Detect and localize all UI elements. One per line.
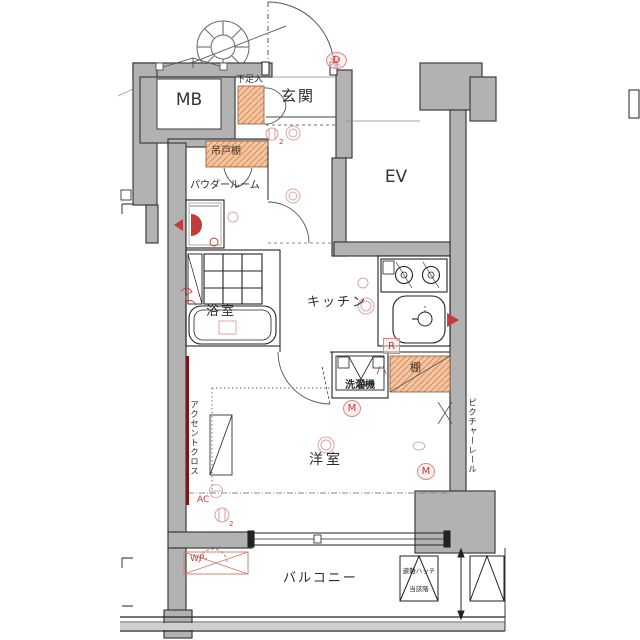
washer-box <box>332 352 388 398</box>
mark-m-room: M <box>417 463 435 480</box>
fixture-label-picture-rail: ピクチャーレール <box>467 398 476 498</box>
fixture-label-evac-floor: 当該階 <box>400 586 438 593</box>
fixture-label-washer: 洗濯機 <box>333 381 387 391</box>
fixture-label-shoe-box: 下足入 <box>236 76 263 85</box>
balcony-window <box>248 531 450 547</box>
floor-plan-drawing <box>0 0 640 640</box>
fixture-label-cupboard: 吊戸棚 <box>211 147 241 157</box>
fixture-label-accent-cloth: アクセントクロス <box>189 400 198 500</box>
room-label-western: 洋室 <box>309 453 343 467</box>
mark-m-washer: M <box>343 400 361 417</box>
entrance-door <box>262 2 337 77</box>
fixture-label-shelf: 棚 <box>410 362 421 373</box>
outlet-sub-room: 2 <box>229 521 233 528</box>
mark-r: R <box>383 338 400 354</box>
mark-d: D <box>326 52 347 69</box>
room-label-mb: MB <box>157 92 221 109</box>
western-room-lines <box>188 388 452 497</box>
mark-ac: AC <box>197 496 209 505</box>
room-label-powder: パウダールーム <box>190 181 260 191</box>
bathroom <box>181 250 280 346</box>
room-label-balcony: バルコニー <box>283 572 358 585</box>
edge-box <box>629 90 639 118</box>
outlet-sub-genkan: 2 <box>279 139 283 146</box>
room-label-bath: 浴室 <box>206 305 236 318</box>
room-label-kitchen: キッチン <box>307 296 367 309</box>
floor-plan: MB 下足入 玄関 EV 吊戸棚 パウダールーム 浴室 キッチン 棚 洗濯機 洋… <box>0 0 640 640</box>
room-label-ev: EV <box>374 169 418 186</box>
shoe-box-shape <box>238 86 264 124</box>
evacuation-hatch-boxes <box>400 549 504 619</box>
room-label-genkan: 玄関 <box>281 89 315 104</box>
fixture-label-evac-hatch: 避難ハッチ <box>400 568 438 575</box>
kitchen-counter <box>378 256 459 346</box>
mark-wp: WP- <box>190 555 207 564</box>
